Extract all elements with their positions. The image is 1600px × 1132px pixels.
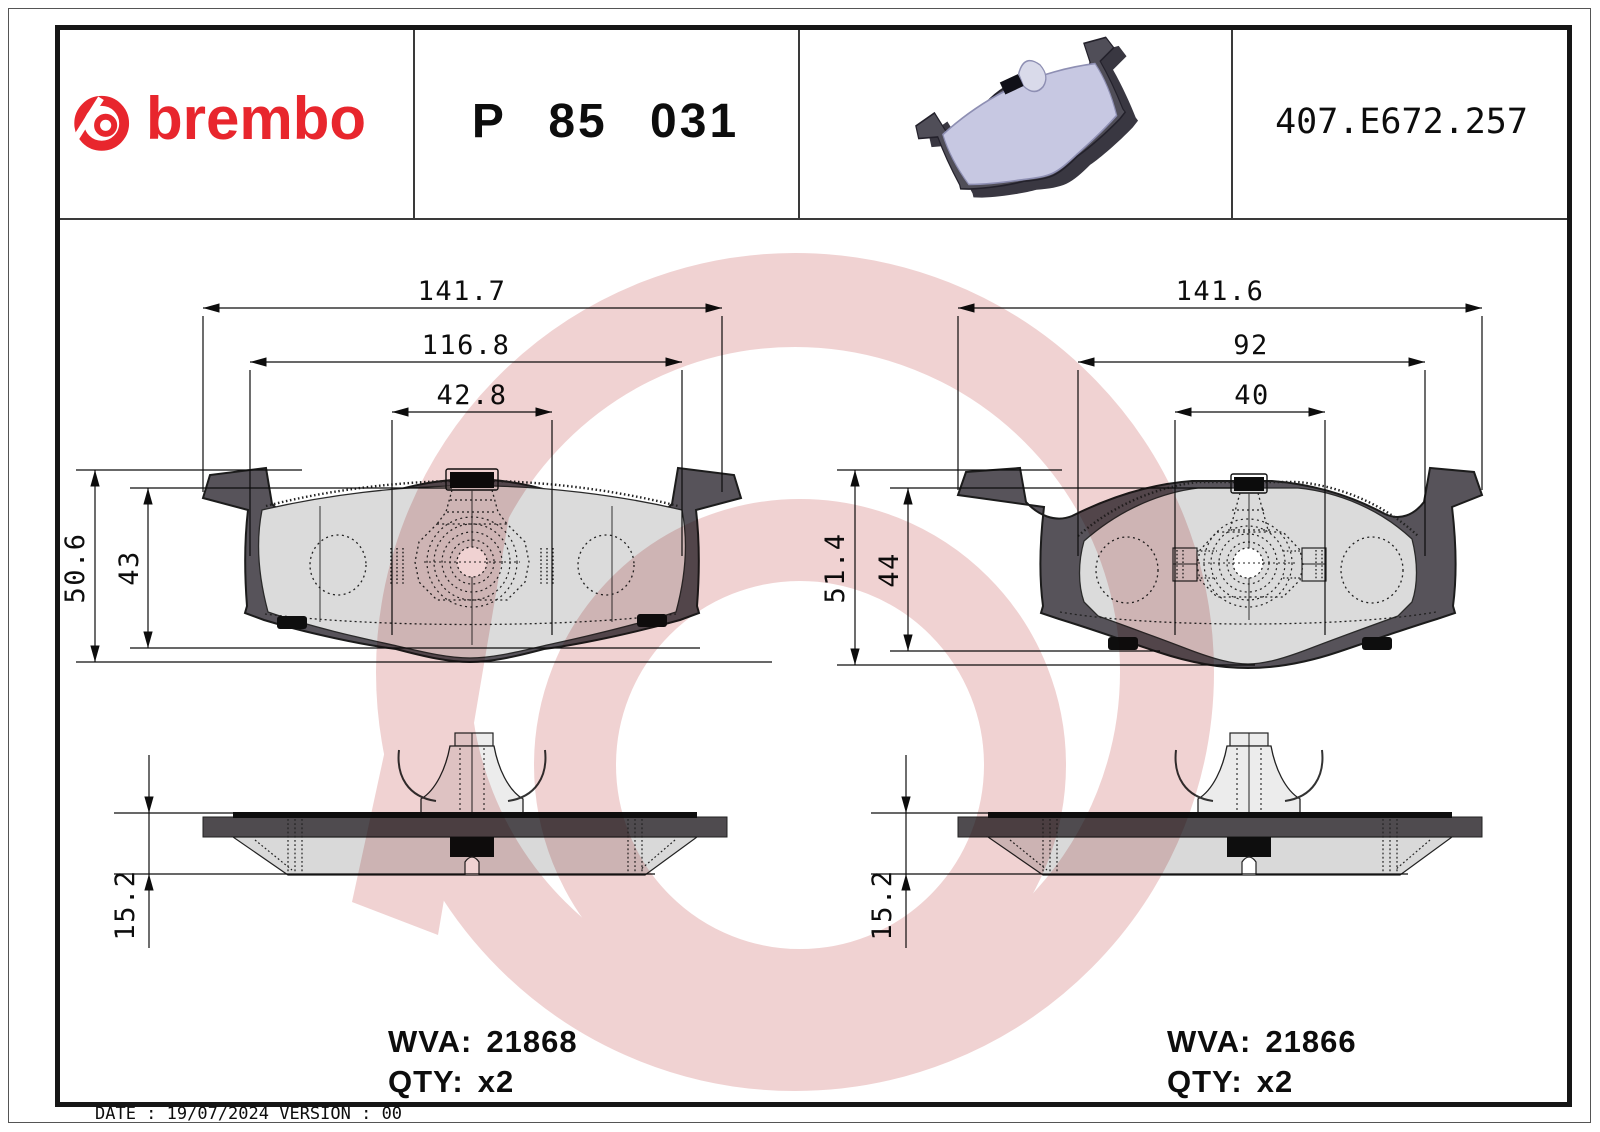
left-qty-line: QTY:x2 — [388, 1062, 578, 1102]
right-wva-line: WVA:21866 — [1167, 1022, 1357, 1062]
left-qty-value: x2 — [478, 1064, 514, 1099]
right-wva-value: 21866 — [1265, 1024, 1356, 1059]
brembo-emblem-icon — [70, 89, 136, 155]
right-qty-value: x2 — [1257, 1064, 1293, 1099]
left-wva-value: 21868 — [486, 1024, 577, 1059]
left-pad-info: WVA:21868 QTY:x2 — [388, 1022, 578, 1102]
right-pad-info: WVA:21866 QTY:x2 — [1167, 1022, 1357, 1102]
date-version-line: DATE : 19/07/2024 VERSION : 00 — [95, 1104, 402, 1124]
left-wva-line: WVA:21868 — [388, 1022, 578, 1062]
right-wva-label: WVA: — [1167, 1024, 1251, 1059]
right-qty-label: QTY: — [1167, 1064, 1243, 1099]
part-number: P 85 031 — [413, 25, 798, 218]
right-qty-line: QTY:x2 — [1167, 1062, 1357, 1102]
left-wva-label: WVA: — [388, 1024, 472, 1059]
reference-code: 407.E672.257 — [1231, 25, 1572, 218]
header-divider-2 — [798, 30, 800, 219]
header-divider-horizontal — [60, 218, 1567, 220]
brand-wordmark: brembo — [146, 84, 366, 153]
brake-pad-datasheet: { "header": { "brand_wordmark": "brembo"… — [0, 0, 1600, 1132]
brand-logo: brembo — [70, 25, 413, 218]
left-qty-label: QTY: — [388, 1064, 464, 1099]
